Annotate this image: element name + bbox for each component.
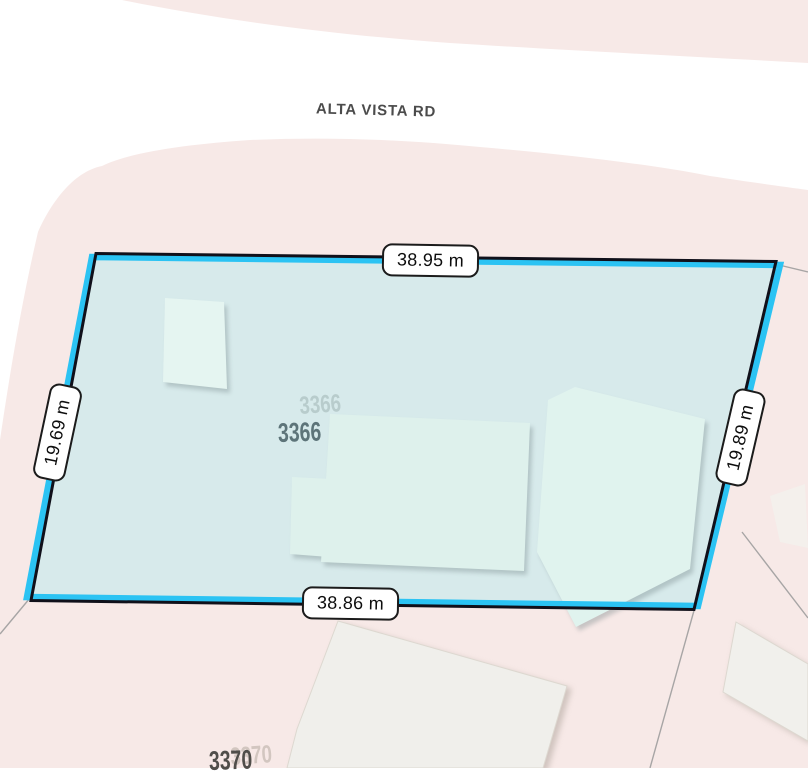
map-canvas[interactable]: 3370 3366 ALTA VISTA RD 38.95 m 38.86 m … <box>0 0 808 768</box>
building-main-house-body <box>321 414 530 571</box>
map-layers: 3370 3366 <box>0 0 808 768</box>
ghost-address-3370: 3370 <box>229 740 273 768</box>
building-main-house-wing <box>290 477 331 557</box>
building-shed <box>163 298 227 389</box>
block-north-of-road <box>122 0 808 63</box>
